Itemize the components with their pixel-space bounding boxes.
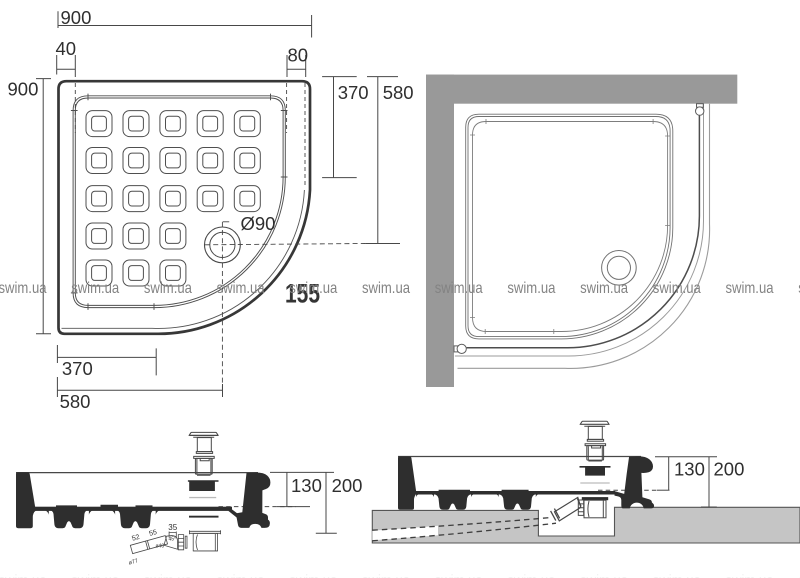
svg-text:900: 900 <box>8 79 39 100</box>
svg-text:900: 900 <box>61 7 92 28</box>
svg-text:swim.ua: swim.ua <box>726 280 774 297</box>
svg-text:35: 35 <box>168 523 177 532</box>
svg-text:200: 200 <box>332 475 363 496</box>
svg-text:swim.ua: swim.ua <box>435 280 483 297</box>
svg-text:swim.ua: swim.ua <box>71 280 119 297</box>
svg-text:swim.ua: swim.ua <box>144 280 192 297</box>
svg-text:swim.ua: swim.ua <box>435 573 483 578</box>
svg-text:swim.ua: swim.ua <box>580 573 628 578</box>
svg-text:40: 40 <box>56 38 77 59</box>
svg-text:swim.ua: swim.ua <box>653 280 701 297</box>
svg-text:swim.ua: swim.ua <box>289 573 337 578</box>
svg-text:ø77: ø77 <box>128 558 139 566</box>
svg-text:580: 580 <box>383 82 414 103</box>
svg-text:swim.ua: swim.ua <box>507 573 555 578</box>
svg-text:370: 370 <box>62 358 93 379</box>
svg-text:swim.ua: swim.ua <box>289 280 337 297</box>
svg-text:52: 52 <box>131 534 140 543</box>
svg-text:45°: 45° <box>169 537 177 543</box>
svg-text:swim.ua: swim.ua <box>362 280 410 297</box>
svg-text:swim.ua: swim.ua <box>217 280 265 297</box>
svg-text:swim.ua: swim.ua <box>362 573 410 578</box>
svg-text:55: 55 <box>148 529 157 538</box>
svg-text:swim.ua: swim.ua <box>726 573 774 578</box>
svg-text:130: 130 <box>291 475 322 496</box>
svg-text:swim.ua: swim.ua <box>580 280 628 297</box>
svg-text:200: 200 <box>714 459 745 480</box>
svg-text:580: 580 <box>60 391 91 412</box>
svg-text:swim.ua: swim.ua <box>0 280 47 297</box>
svg-text:swim.ua: swim.ua <box>217 573 265 578</box>
svg-text:swim.ua: swim.ua <box>0 573 47 578</box>
svg-text:ø40: ø40 <box>156 544 165 550</box>
svg-text:Ø90: Ø90 <box>241 213 276 234</box>
svg-text:swim.ua: swim.ua <box>507 280 555 297</box>
svg-text:swim.ua: swim.ua <box>653 573 701 578</box>
svg-text:370: 370 <box>338 82 369 103</box>
svg-text:80: 80 <box>288 45 309 66</box>
svg-text:130: 130 <box>674 459 705 480</box>
svg-text:swim.ua: swim.ua <box>144 573 192 578</box>
svg-text:swim.ua: swim.ua <box>71 573 119 578</box>
